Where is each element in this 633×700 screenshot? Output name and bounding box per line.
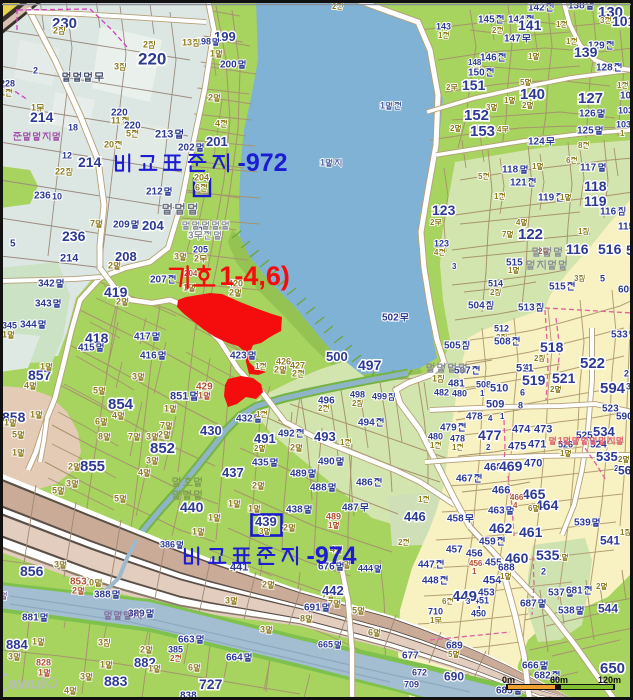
svg-text:386: 386 xyxy=(160,540,175,550)
svg-text:121: 121 xyxy=(510,178,527,189)
svg-text:3: 3 xyxy=(146,432,151,442)
svg-text:2: 2 xyxy=(194,254,199,264)
svg-text:1: 1 xyxy=(500,412,505,421)
svg-text:2: 2 xyxy=(430,218,435,227)
svg-text:478: 478 xyxy=(466,412,483,423)
svg-text:5: 5 xyxy=(52,486,57,496)
svg-text:2: 2 xyxy=(53,26,58,36)
svg-text:465: 465 xyxy=(522,486,546,502)
svg-text:3: 3 xyxy=(174,252,179,262)
svg-text:6: 6 xyxy=(566,156,571,165)
svg-text:1: 1 xyxy=(452,443,457,452)
svg-text:236: 236 xyxy=(34,191,51,202)
svg-text:518: 518 xyxy=(540,339,564,355)
svg-text:2: 2 xyxy=(170,654,175,663)
svg-text:1: 1 xyxy=(504,96,509,105)
svg-text:2: 2 xyxy=(318,404,323,413)
svg-text:3: 3 xyxy=(54,560,59,570)
svg-text:1: 1 xyxy=(198,391,203,401)
svg-text:1: 1 xyxy=(472,567,477,576)
svg-text:8: 8 xyxy=(98,432,103,442)
svg-text:2: 2 xyxy=(140,645,145,655)
svg-text:204: 204 xyxy=(184,269,198,278)
svg-text:430: 430 xyxy=(200,423,222,438)
svg-text:1: 1 xyxy=(532,162,537,171)
svg-text:510: 510 xyxy=(490,383,508,395)
svg-text:127: 127 xyxy=(578,90,603,107)
svg-text:116: 116 xyxy=(600,207,617,218)
svg-text:8: 8 xyxy=(578,141,583,150)
svg-text:500: 500 xyxy=(326,349,348,364)
svg-text:209: 209 xyxy=(113,220,130,231)
svg-text:1: 1 xyxy=(620,528,625,537)
svg-text:444: 444 xyxy=(358,564,373,574)
svg-text:2: 2 xyxy=(352,399,357,408)
svg-text:513: 513 xyxy=(518,303,535,314)
svg-text:1: 1 xyxy=(380,101,385,111)
svg-text:492: 492 xyxy=(278,429,295,440)
svg-text:477: 477 xyxy=(478,427,502,443)
svg-text:3: 3 xyxy=(452,262,457,271)
svg-text:10: 10 xyxy=(52,192,62,202)
svg-text:469: 469 xyxy=(499,458,523,474)
svg-text:446: 446 xyxy=(404,509,426,524)
svg-text:4: 4 xyxy=(497,125,502,134)
svg-text:4: 4 xyxy=(513,501,518,510)
svg-text:3: 3 xyxy=(146,456,151,466)
svg-text:415: 415 xyxy=(78,343,95,354)
svg-text:212: 212 xyxy=(146,187,163,198)
svg-text:2: 2 xyxy=(254,444,259,453)
svg-text:449: 449 xyxy=(452,588,477,605)
svg-text:2: 2 xyxy=(534,354,539,363)
svg-text:388: 388 xyxy=(94,590,111,601)
svg-text:1: 1 xyxy=(208,513,213,523)
svg-text:521: 521 xyxy=(552,370,576,386)
svg-text:124: 124 xyxy=(528,137,545,148)
svg-text:11: 11 xyxy=(111,116,121,126)
svg-text:6: 6 xyxy=(520,388,525,398)
svg-text:665: 665 xyxy=(318,640,333,650)
svg-text:502: 502 xyxy=(382,313,399,324)
svg-text:2: 2 xyxy=(332,2,337,11)
svg-text:499: 499 xyxy=(372,392,387,402)
svg-text:3: 3 xyxy=(188,231,194,242)
svg-text:214: 214 xyxy=(78,154,102,170)
svg-text:490: 490 xyxy=(318,457,335,468)
svg-text:5: 5 xyxy=(93,386,98,396)
svg-text:-974: -974 xyxy=(307,542,357,570)
svg-text:515: 515 xyxy=(549,282,566,293)
svg-text:663: 663 xyxy=(178,635,195,646)
svg-text:2: 2 xyxy=(450,124,455,133)
svg-text:1: 1 xyxy=(620,129,625,138)
svg-text:466: 466 xyxy=(492,485,510,497)
svg-text:541: 541 xyxy=(600,533,620,547)
svg-text:101: 101 xyxy=(612,13,633,29)
svg-text:1: 1 xyxy=(500,572,505,581)
svg-text:852: 852 xyxy=(150,440,175,457)
svg-text:851: 851 xyxy=(170,391,188,403)
svg-text:493: 493 xyxy=(314,429,336,444)
svg-text:2: 2 xyxy=(541,567,546,577)
svg-text:117: 117 xyxy=(580,163,597,174)
svg-text:1: 1 xyxy=(210,49,215,59)
svg-text:509: 509 xyxy=(486,399,504,411)
svg-text:118: 118 xyxy=(584,178,607,194)
svg-text:1: 1 xyxy=(438,31,443,40)
svg-text:677: 677 xyxy=(402,651,419,662)
svg-text:1: 1 xyxy=(558,436,563,446)
svg-text:535: 535 xyxy=(536,547,560,563)
svg-text:5: 5 xyxy=(478,172,483,181)
svg-text:3: 3 xyxy=(114,62,119,72)
svg-text:145: 145 xyxy=(478,15,495,26)
svg-text:855: 855 xyxy=(80,458,105,475)
svg-text:1: 1 xyxy=(32,637,37,647)
svg-text:8: 8 xyxy=(300,614,305,624)
svg-text:128: 128 xyxy=(596,63,613,74)
svg-text:522: 522 xyxy=(580,355,605,372)
svg-text:537: 537 xyxy=(548,588,565,599)
svg-text:7: 7 xyxy=(502,230,507,239)
svg-text:450: 450 xyxy=(471,609,486,619)
svg-text:126: 126 xyxy=(579,109,596,120)
svg-text:497: 497 xyxy=(358,357,382,373)
svg-text:467: 467 xyxy=(456,474,473,485)
svg-text:727: 727 xyxy=(199,676,223,692)
svg-text:122: 122 xyxy=(518,226,543,243)
svg-text:2: 2 xyxy=(292,369,297,379)
svg-text:494: 494 xyxy=(358,418,375,429)
svg-text:344: 344 xyxy=(20,320,37,331)
svg-text:664: 664 xyxy=(226,653,243,664)
svg-text:2: 2 xyxy=(398,538,403,547)
svg-text:6: 6 xyxy=(195,183,200,193)
svg-text:1: 1 xyxy=(560,193,565,202)
svg-text:2: 2 xyxy=(108,261,113,271)
svg-text:1: 1 xyxy=(164,404,169,414)
svg-text:448: 448 xyxy=(422,576,439,587)
svg-text:2: 2 xyxy=(262,580,267,590)
svg-text:1: 1 xyxy=(556,20,561,29)
svg-text:3: 3 xyxy=(98,638,103,648)
svg-text:533: 533 xyxy=(611,330,628,341)
svg-text:4: 4 xyxy=(524,363,529,372)
svg-text:2: 2 xyxy=(116,297,121,307)
svg-text:691: 691 xyxy=(304,603,321,614)
svg-text:881: 881 xyxy=(22,613,39,624)
svg-text:883: 883 xyxy=(104,673,128,689)
svg-text:0m: 0m xyxy=(502,675,515,685)
svg-text:1: 1 xyxy=(560,449,565,458)
svg-text:1: 1 xyxy=(4,418,9,428)
svg-text:220: 220 xyxy=(138,50,166,69)
svg-text:8: 8 xyxy=(518,401,523,411)
svg-text:416: 416 xyxy=(140,351,157,362)
svg-text:3: 3 xyxy=(66,479,71,489)
svg-text:3: 3 xyxy=(80,672,85,682)
svg-text:207: 207 xyxy=(150,275,167,286)
svg-text:486: 486 xyxy=(356,478,373,489)
svg-text:2: 2 xyxy=(522,101,527,110)
svg-text:1: 1 xyxy=(340,438,345,447)
svg-text:884: 884 xyxy=(6,637,28,652)
svg-text:2: 2 xyxy=(208,93,213,103)
svg-text:4: 4 xyxy=(434,248,439,257)
svg-text:487: 487 xyxy=(342,503,359,514)
svg-text:123: 123 xyxy=(432,202,456,218)
svg-text:2: 2 xyxy=(283,523,288,533)
svg-text:471: 471 xyxy=(528,439,546,451)
svg-text:1: 1 xyxy=(328,521,333,530)
svg-text:3: 3 xyxy=(486,103,491,112)
svg-text:2: 2 xyxy=(252,481,257,491)
svg-text:1: 1 xyxy=(256,410,261,419)
svg-text:60m: 60m xyxy=(550,675,568,685)
svg-text:432: 432 xyxy=(236,414,253,425)
svg-text:508: 508 xyxy=(494,337,511,348)
svg-text:4: 4 xyxy=(516,218,521,227)
svg-text:1: 1 xyxy=(255,362,260,371)
svg-text:125: 125 xyxy=(577,126,594,137)
svg-text:2: 2 xyxy=(68,462,73,472)
svg-text:4: 4 xyxy=(215,119,220,129)
svg-text:544: 544 xyxy=(598,601,618,615)
svg-text:13: 13 xyxy=(182,38,192,48)
svg-text:473: 473 xyxy=(534,424,552,436)
svg-text:4: 4 xyxy=(64,686,69,696)
svg-text:1: 1 xyxy=(320,158,325,168)
svg-text:3: 3 xyxy=(260,625,265,635)
svg-text:856: 856 xyxy=(20,563,44,579)
svg-text:488: 488 xyxy=(310,483,327,494)
svg-text:1: 1 xyxy=(418,495,423,504)
svg-text:343: 343 xyxy=(35,299,52,310)
svg-text:442: 442 xyxy=(322,583,344,598)
svg-text:151: 151 xyxy=(462,77,486,93)
svg-text:1: 1 xyxy=(432,374,437,384)
svg-text:1-4,6): 1-4,6) xyxy=(219,261,290,291)
svg-text:4: 4 xyxy=(488,414,493,423)
svg-text:awul: awul xyxy=(8,674,46,693)
svg-text:5: 5 xyxy=(520,78,525,87)
svg-text:204: 204 xyxy=(194,173,209,183)
svg-text:2: 2 xyxy=(33,66,38,76)
svg-text:462: 462 xyxy=(489,520,513,536)
svg-text:1: 1 xyxy=(494,192,499,201)
svg-text:5: 5 xyxy=(12,430,17,440)
svg-text:470: 470 xyxy=(524,458,542,470)
svg-text:457: 457 xyxy=(446,545,463,556)
svg-text:4: 4 xyxy=(112,411,117,421)
svg-text:3: 3 xyxy=(600,16,605,25)
svg-text:516: 516 xyxy=(598,241,622,257)
svg-text:116: 116 xyxy=(566,241,589,257)
svg-text:3: 3 xyxy=(225,596,230,606)
svg-text:417: 417 xyxy=(134,332,151,343)
svg-text:594: 594 xyxy=(600,380,626,397)
svg-text:141: 141 xyxy=(518,17,542,33)
svg-text:153: 153 xyxy=(470,123,495,140)
svg-text:475: 475 xyxy=(508,441,526,453)
svg-text:1: 1 xyxy=(248,504,253,514)
svg-text:6: 6 xyxy=(442,597,447,606)
svg-text:2: 2 xyxy=(446,83,451,92)
svg-text:538: 538 xyxy=(558,606,575,617)
svg-text:1: 1 xyxy=(12,448,17,458)
svg-text:505: 505 xyxy=(444,341,461,352)
svg-text:2: 2 xyxy=(490,288,495,297)
svg-text:447: 447 xyxy=(418,560,435,571)
svg-text:1: 1 xyxy=(192,527,197,537)
svg-text:539: 539 xyxy=(574,518,591,529)
svg-text:463: 463 xyxy=(488,506,505,517)
svg-text:1: 1 xyxy=(480,389,485,398)
svg-text:139: 139 xyxy=(574,44,598,60)
svg-text:480: 480 xyxy=(452,389,467,399)
svg-text:1: 1 xyxy=(528,52,533,61)
svg-text:438: 438 xyxy=(286,505,303,516)
svg-text:204: 204 xyxy=(142,218,164,233)
svg-text:22: 22 xyxy=(55,167,65,177)
svg-text:482: 482 xyxy=(434,388,449,398)
svg-text:1: 1 xyxy=(578,227,583,236)
svg-text:5: 5 xyxy=(600,274,605,284)
svg-text:3: 3 xyxy=(8,652,13,662)
svg-text:1: 1 xyxy=(31,103,36,113)
svg-text:6: 6 xyxy=(528,504,533,513)
svg-text:1: 1 xyxy=(228,499,233,509)
svg-text:440: 440 xyxy=(180,499,204,515)
svg-text:1: 1 xyxy=(40,362,45,372)
svg-text:828: 828 xyxy=(36,658,51,668)
svg-text:-972: -972 xyxy=(238,149,288,177)
svg-text:681: 681 xyxy=(566,586,583,597)
svg-text:147: 147 xyxy=(504,34,521,45)
svg-text:4: 4 xyxy=(138,468,143,478)
svg-text:1: 1 xyxy=(508,266,513,275)
svg-text:1: 1 xyxy=(430,616,435,625)
svg-text:458: 458 xyxy=(447,514,464,525)
svg-text:2: 2 xyxy=(274,365,279,375)
svg-text:3: 3 xyxy=(466,597,471,606)
svg-text:7: 7 xyxy=(128,432,133,442)
svg-text:504: 504 xyxy=(468,301,485,312)
svg-text:682: 682 xyxy=(534,671,551,682)
svg-text:5: 5 xyxy=(352,606,357,616)
svg-text:12: 12 xyxy=(62,151,72,161)
svg-text:2: 2 xyxy=(596,582,601,591)
svg-text:489: 489 xyxy=(290,469,307,480)
svg-text:202: 202 xyxy=(178,143,195,154)
svg-text:342: 342 xyxy=(38,279,55,290)
svg-text:461: 461 xyxy=(519,524,543,540)
svg-text:146: 146 xyxy=(480,53,497,64)
svg-text:672: 672 xyxy=(412,668,427,678)
svg-text:119: 119 xyxy=(538,193,555,204)
svg-text:1: 1 xyxy=(148,664,153,674)
svg-text:535: 535 xyxy=(596,449,618,464)
svg-text:1: 1 xyxy=(617,81,622,90)
svg-text:2: 2 xyxy=(290,443,295,453)
svg-text:200: 200 xyxy=(220,60,237,71)
svg-text:20: 20 xyxy=(104,140,114,150)
svg-text:459: 459 xyxy=(479,537,496,548)
svg-text:214: 214 xyxy=(60,253,79,265)
svg-text:519: 519 xyxy=(522,372,546,388)
svg-text:5: 5 xyxy=(114,494,119,504)
svg-text:201: 201 xyxy=(206,134,228,149)
svg-text:3: 3 xyxy=(259,527,264,536)
svg-text:423: 423 xyxy=(230,351,247,362)
svg-text:6: 6 xyxy=(368,628,373,638)
svg-text:118: 118 xyxy=(502,165,519,176)
svg-text:1: 1 xyxy=(566,37,571,46)
svg-text:2: 2 xyxy=(486,443,491,452)
svg-text:1: 1 xyxy=(430,441,435,450)
svg-text:c: c xyxy=(49,680,53,689)
svg-text:709: 709 xyxy=(404,680,419,690)
svg-text:5: 5 xyxy=(448,650,453,659)
svg-text:474: 474 xyxy=(512,424,531,436)
svg-text:437: 437 xyxy=(222,465,244,480)
svg-text:1: 1 xyxy=(100,660,105,670)
svg-text:236: 236 xyxy=(62,228,86,244)
svg-text:5: 5 xyxy=(10,239,16,250)
svg-text:2: 2 xyxy=(72,586,77,596)
svg-text:666: 666 xyxy=(522,661,539,672)
svg-text:2: 2 xyxy=(550,385,555,394)
svg-text:6: 6 xyxy=(95,417,100,427)
svg-text:2: 2 xyxy=(143,40,148,50)
svg-text:1: 1 xyxy=(30,410,35,420)
svg-text:120m: 120m xyxy=(598,675,621,685)
svg-text:18: 18 xyxy=(68,123,78,133)
svg-text:3: 3 xyxy=(132,372,137,382)
svg-text:2: 2 xyxy=(492,26,497,35)
svg-text:690: 690 xyxy=(444,669,464,683)
svg-text:2: 2 xyxy=(624,369,629,379)
svg-text:435: 435 xyxy=(252,458,269,469)
svg-text:4: 4 xyxy=(24,381,29,391)
svg-text:687: 687 xyxy=(520,599,537,610)
svg-text:213: 213 xyxy=(155,129,173,141)
svg-text:7: 7 xyxy=(90,219,95,229)
svg-text:6: 6 xyxy=(188,663,193,673)
svg-text:5: 5 xyxy=(126,129,131,139)
